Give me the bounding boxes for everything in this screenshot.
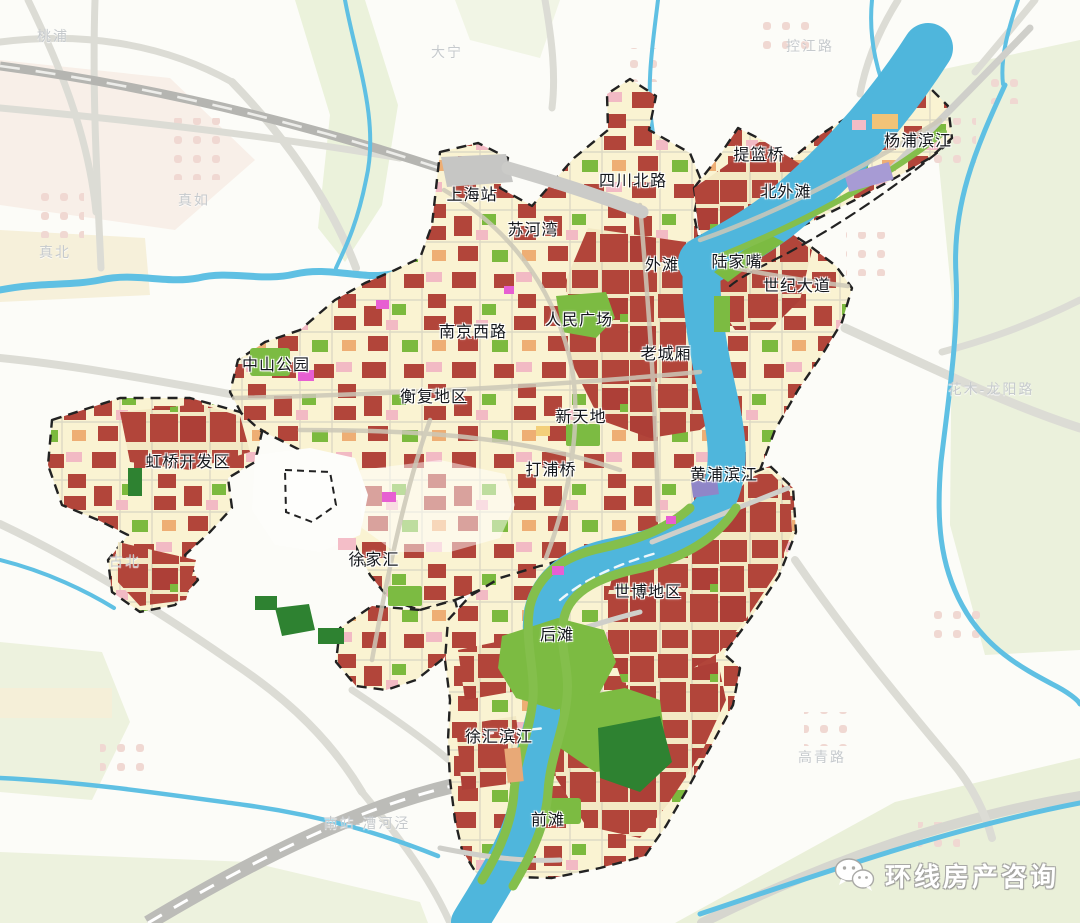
planning-map: 上海站苏河湾四川北路提篮桥北外滩杨浦滨江外滩陆家嘴世纪大道人民广场南京西路老城厢… xyxy=(0,0,1080,923)
watermark: 环线房产咨询 xyxy=(833,856,1059,894)
wechat-icon xyxy=(833,856,877,894)
watermark-text: 环线房产咨询 xyxy=(885,857,1059,894)
zhongshan-park xyxy=(250,348,290,376)
map-canvas xyxy=(0,0,1080,923)
